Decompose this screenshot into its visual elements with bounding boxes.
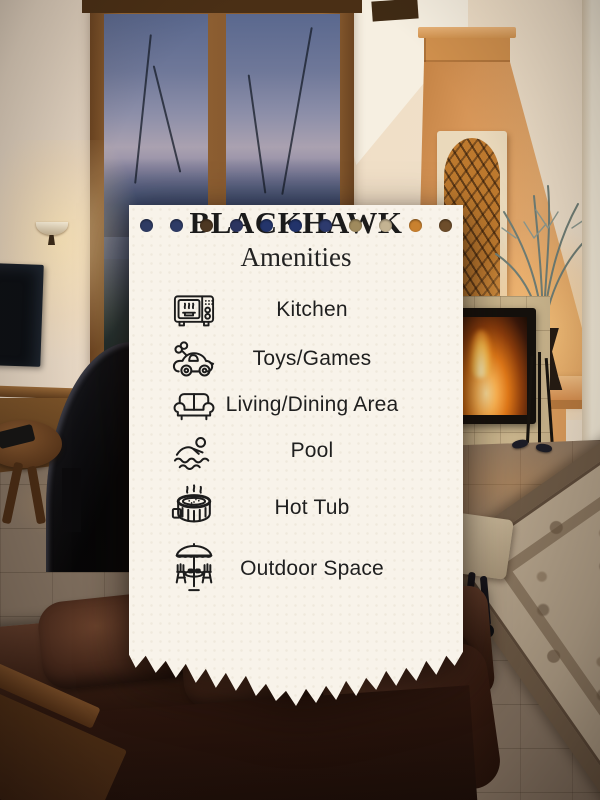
amenity-row-outdoor-space: Outdoor Space (169, 542, 463, 596)
punch-hole (140, 219, 153, 232)
paper-card: BLACKHAWK Amenities (129, 205, 463, 707)
amenity-row-living-dining: Living/Dining Area (169, 386, 463, 424)
amenities-card: BLACKHAWK Amenities (129, 147, 463, 707)
sofa-icon (169, 386, 219, 424)
swimmer-icon (169, 431, 219, 471)
punch-hole (200, 219, 213, 232)
amenity-row-kitchen: Kitchen (169, 290, 463, 330)
hot-tub-icon (169, 483, 219, 533)
amenity-row-hot-tub: Hot Tub (169, 483, 463, 533)
card-subtitle: Amenities (129, 242, 463, 273)
microwave-icon (169, 290, 219, 330)
amenity-label: Outdoor Space (219, 557, 463, 581)
amenity-label: Hot Tub (219, 496, 463, 520)
flyer-image: BLACKHAWK Amenities (0, 0, 600, 800)
amenity-label: Toys/Games (219, 347, 463, 371)
punch-holes-row (140, 219, 452, 232)
punch-hole (439, 219, 452, 232)
punch-hole (379, 219, 392, 232)
amenities-list: Kitchen (129, 290, 463, 596)
punch-hole (409, 219, 422, 232)
punch-hole (260, 219, 273, 232)
punch-hole (230, 219, 243, 232)
amenity-row-pool: Pool (169, 431, 463, 471)
amenity-label: Kitchen (219, 298, 463, 322)
punch-hole (319, 219, 332, 232)
punch-hole (289, 219, 302, 232)
toy-car-icon (169, 337, 219, 381)
patio-umbrella-icon (169, 542, 219, 596)
amenity-label: Living/Dining Area (219, 393, 463, 417)
punch-hole (349, 219, 362, 232)
punch-hole (170, 219, 183, 232)
amenity-row-toys-games: Toys/Games (169, 337, 463, 381)
amenity-label: Pool (219, 439, 463, 463)
